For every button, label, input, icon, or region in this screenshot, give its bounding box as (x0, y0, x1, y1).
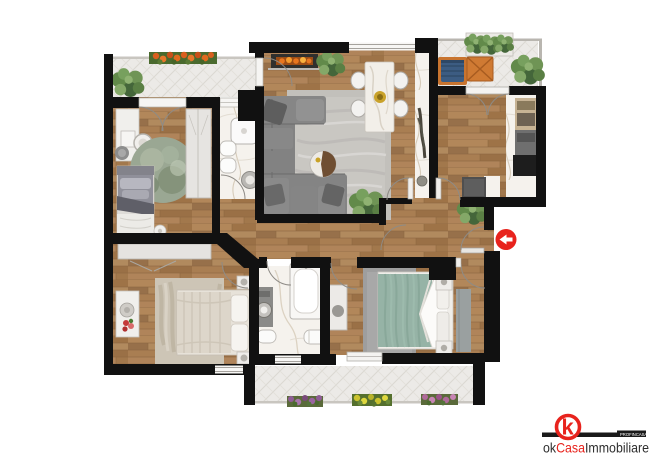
svg-text:okCasaImmobiliare: okCasaImmobiliare (543, 440, 649, 456)
svg-text:PROFINCASA: PROFINCASA (620, 432, 647, 437)
svg-text:k: k (562, 415, 575, 440)
